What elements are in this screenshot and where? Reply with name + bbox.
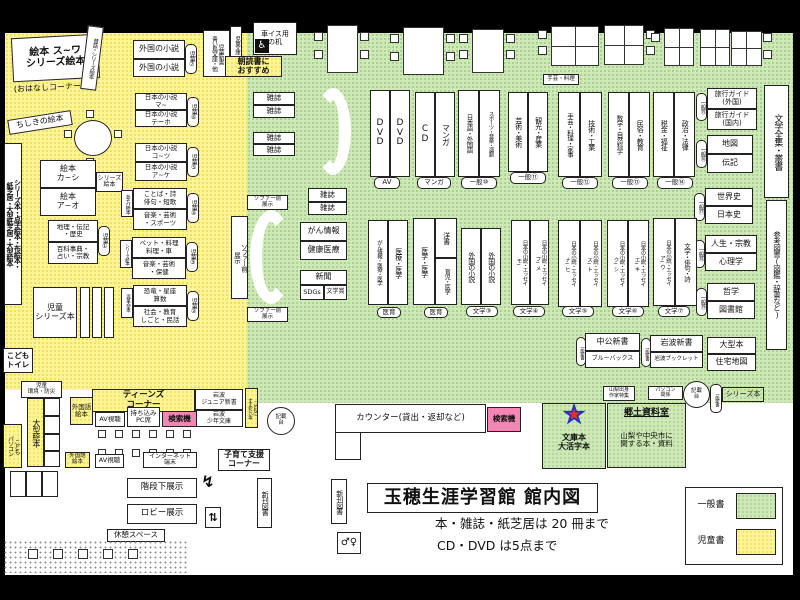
legend-general-label: 一般書 bbox=[688, 499, 734, 513]
tag-manga: マンガ bbox=[417, 177, 451, 189]
tag-ippan-10: 一般⑩ bbox=[461, 177, 497, 189]
jidou-series-shelf: 児童 シリーズ本 bbox=[33, 287, 77, 338]
shelf-cell bbox=[44, 416, 60, 434]
japanese-novels-kotsu-shelf: 日本の小説 コ~ツ bbox=[135, 143, 187, 162]
gaikoku-shosetsu-shelf: 外国の小説 bbox=[461, 228, 481, 305]
tag-bungaku-7: 文学⑦ bbox=[658, 306, 690, 317]
kanko-sangyo-shelf: 観光・産業 bbox=[528, 92, 548, 172]
tag-ippan-13: 一般⑬ bbox=[612, 177, 648, 189]
kyoryu-shelf: 恐竜・星座 算数 bbox=[133, 285, 187, 306]
chair bbox=[763, 50, 772, 59]
zasshi-shelf: 雑誌 bbox=[253, 105, 295, 118]
counter-leg bbox=[335, 432, 361, 460]
reading-table bbox=[604, 25, 644, 65]
bungaku-zenshu-strip: 文学全集・叢書 bbox=[764, 85, 789, 198]
chair bbox=[314, 50, 323, 59]
asadoku-recommend-box: 朝読書に おすすめ bbox=[225, 56, 282, 77]
bungakusho-shelf: 文学賞 bbox=[324, 285, 347, 300]
tag-av: AV bbox=[374, 177, 400, 189]
reading-table bbox=[700, 29, 730, 66]
sugaku-kagaku-shelf: 数学・自然科学 bbox=[608, 92, 629, 177]
lobby-tenji: ロビー展示 bbox=[127, 504, 197, 524]
sofa-mae-tag-bottom: ソファー前 展示 bbox=[247, 307, 288, 322]
kisaidai-circle: 記載 台 bbox=[683, 381, 710, 408]
jidou-kankyo-shelf: 児童 環境・防災 bbox=[21, 381, 62, 398]
shelf-pillar bbox=[104, 287, 114, 338]
chiri-denki-shelf: 地理・伝記 ・歴史 bbox=[48, 220, 98, 242]
bench-cell bbox=[42, 471, 58, 497]
stairs-icon: ↯ bbox=[197, 471, 219, 493]
legend-general-swatch bbox=[736, 493, 776, 519]
shakai-shelf: 社会・教育 しごと・民話 bbox=[133, 306, 187, 327]
nihon-essay-e-ki-shelf: 日本の小説・エッセイ エ~キ bbox=[628, 220, 649, 307]
chair bbox=[390, 52, 399, 61]
minzoku-kyoiku-shelf: 民俗・教育 bbox=[629, 92, 650, 177]
pet-ryori-shelf: ペット・料理 料理・車 bbox=[132, 237, 186, 258]
sanko-tosho-strip: 参考図書(図鑑・辞書など) bbox=[766, 200, 787, 350]
chair bbox=[360, 32, 369, 41]
chair bbox=[538, 30, 547, 39]
chair bbox=[446, 34, 455, 43]
av-limit-note: CD・DVD は5点まで bbox=[437, 537, 655, 555]
shelf-cell bbox=[44, 398, 60, 416]
jutaku-chizu-shelf: 住宅地図 bbox=[707, 354, 756, 371]
sports-ongaku-engeki-shelf: スポーツ・音楽・演劇 bbox=[479, 90, 500, 177]
chair bbox=[360, 50, 369, 59]
tetsugaku-shelf: 哲学 bbox=[707, 283, 755, 301]
kodomo-pasokon-strip: こども パソコン bbox=[3, 424, 22, 468]
tag-ippan-11: 一般⑪ bbox=[510, 172, 546, 184]
ogata-ehon-strip: 大型絵本 bbox=[27, 398, 44, 467]
wheelchair-icon: ♿ bbox=[255, 39, 269, 53]
rest-seat bbox=[78, 549, 88, 559]
ogata-bon-shelf: 大型本 bbox=[707, 337, 756, 354]
nihon-essay-mo-shelf: 日本の小説・エッセイ モ~ bbox=[511, 220, 530, 305]
kenko-iryo-shelf: 健康医療 bbox=[300, 241, 347, 260]
shelf-pillar bbox=[80, 287, 90, 338]
series-ehon-tag-1: シリーズ 絵本 bbox=[96, 172, 123, 192]
nihongo-gaikokugo-shelf: 日本語・外国語 bbox=[458, 90, 479, 177]
chizu-shelf: 地図 bbox=[707, 135, 753, 154]
teens-chair bbox=[132, 430, 140, 438]
ryoko-guide-kokunai-shelf: 旅行ガイド (国内) bbox=[707, 109, 757, 130]
japanese-novels-ake-shelf: 日本の小説 ア~ケ bbox=[135, 162, 187, 181]
gan-iryo-igaku-shelf: がん情報・医療・医学 bbox=[368, 220, 388, 305]
shelf-cell bbox=[44, 451, 60, 467]
restroom-icon: ♂♀ bbox=[337, 532, 361, 554]
series-ehon-tag-2: シリーズ絵本 bbox=[120, 240, 132, 268]
ehon-ka-shi-shelf: 絵本 カ~シ bbox=[40, 160, 96, 188]
tag-iiku-2: 医育 bbox=[424, 307, 448, 318]
tag-jidou-5: 児童⑤ bbox=[187, 147, 199, 177]
sekaishi-shelf: 世界史 bbox=[705, 188, 753, 206]
iwanami-shonen-shelf: 岩波 少年文庫 bbox=[195, 410, 243, 427]
chair bbox=[763, 33, 772, 42]
tag-ippan-19: 一般⑲ bbox=[696, 288, 707, 316]
chair bbox=[459, 50, 468, 59]
av-shicho-seat: AV視聴 bbox=[95, 412, 125, 427]
chair bbox=[506, 50, 515, 59]
tag-ippan-shinsho: 一般新書 bbox=[710, 384, 722, 413]
gaikokugo-ehon-shelf: 外国語 絵本 bbox=[70, 397, 93, 425]
rest-seat bbox=[53, 549, 63, 559]
jidou-ogata-tag: 児童大型本 bbox=[121, 288, 133, 318]
sofa-mae-tag-top: ソファー前 展示 bbox=[247, 195, 288, 210]
kisaidai-circle: 記載 台 bbox=[267, 407, 295, 435]
tag-ippan-14: 一般⑭ bbox=[657, 177, 693, 189]
reading-table bbox=[472, 29, 504, 73]
gijutsu-kogyo-shelf: 技術・工業 bbox=[580, 92, 602, 177]
nihon-essay-ku-shi-shelf: 日本の小説・エッセイ ク~シ bbox=[607, 220, 628, 307]
rest-seat bbox=[28, 549, 38, 559]
internet-tanmatsu: インターネット 端末 bbox=[143, 452, 197, 468]
seiji-horitsu-shelf: 政治・法律 bbox=[674, 92, 695, 177]
counter: カウンター(貸出・返却など) bbox=[335, 404, 486, 433]
shinrigaku-shelf: 心理学 bbox=[705, 253, 757, 271]
elevator-icon: ⇅ bbox=[205, 507, 221, 528]
av-shicho-seat: AV視聴 bbox=[95, 454, 124, 468]
yamanashi-sakka-tag: 山梨出身 作家特集 bbox=[603, 386, 635, 401]
kyodo-shiryo-desc: 山梨や中央市に 関する本・資料 bbox=[607, 426, 686, 454]
ehon-a-o-shelf: 絵本 ア~オ bbox=[40, 188, 96, 216]
zasshi-shelf: 雑誌 bbox=[308, 202, 347, 215]
legend-children-swatch bbox=[736, 529, 776, 555]
ryoko-guide-gaikoku-shelf: 旅行ガイド (外国) bbox=[707, 88, 757, 109]
tag-bungaku-4: 文学④ bbox=[513, 306, 545, 317]
nihonshi-shelf: 日本史 bbox=[705, 206, 753, 224]
shinkan-tosho-shelf: 新刊図書 bbox=[331, 479, 347, 524]
chair bbox=[506, 34, 515, 43]
tag-ippan-15: 一般⑮ bbox=[696, 93, 707, 121]
tag-jidou-2: 児童② bbox=[187, 291, 199, 321]
tag-ippan-shinsho: 一般新書 bbox=[576, 337, 586, 366]
iwanami-booklet-shelf: 岩波ブックレット bbox=[650, 352, 703, 368]
dvd-shelf: D V D bbox=[390, 90, 410, 177]
hyakka-shelf: 百科事典・ 占い・宗教 bbox=[48, 242, 98, 264]
yosho-shelf: 洋書 bbox=[435, 218, 457, 258]
japanese-novels-teho-shelf: 日本の小説 テーホ bbox=[135, 110, 187, 127]
chuko-shinsho-shelf: 中公新書 bbox=[585, 333, 640, 351]
reading-table bbox=[664, 28, 694, 66]
chair bbox=[446, 52, 455, 61]
teens-chair bbox=[115, 430, 123, 438]
shugei-ryori-kaji-shelf: 手芸・料理・家事 bbox=[558, 92, 580, 177]
reading-table bbox=[551, 26, 599, 66]
zasshi-shelf: 雑誌 bbox=[253, 92, 295, 105]
iwanami-junior-shelf: 岩波 ジュニア新書 bbox=[195, 389, 243, 410]
tag-ippan-17: 一般⑰ bbox=[694, 193, 705, 221]
tag-ippan-16: 一般⑯ bbox=[696, 140, 707, 168]
chair bbox=[646, 46, 655, 55]
rest-seat bbox=[103, 549, 113, 559]
jinsei-shukyo-shelf: 人生・宗教 bbox=[705, 235, 757, 253]
nihon-essay-su-to-shelf: 日本の小説・エッセイ ス~ト bbox=[580, 220, 602, 307]
iwanami-shinsho-shelf: 岩波新書 bbox=[650, 335, 703, 352]
shelf-pillar bbox=[92, 287, 102, 338]
search-machine: 検索機 bbox=[162, 411, 197, 427]
tag-jidou-1: 児童① bbox=[98, 226, 110, 256]
reading-table bbox=[403, 27, 444, 75]
kyodo-shiryo-title: 郷土資料室 bbox=[607, 407, 686, 421]
teens-chair bbox=[166, 430, 174, 438]
kamishibai-strip: シリーズ本・点字絵本・布絵本・ 紙芝居・大型紙芝居・大型絵本 bbox=[4, 143, 22, 305]
ikuji-igaku-shelf: 育児・医学 bbox=[435, 258, 457, 305]
foreign-novels-shelf-top: 外国の小説 bbox=[133, 40, 185, 59]
bungaku-haiku-shi-shelf: 文学・俳句・詩 bbox=[675, 218, 697, 306]
search-machine: 検索機 bbox=[487, 407, 521, 432]
sdgs-shelf: SDGs bbox=[300, 285, 324, 300]
asobi-ehon-tag: あそび絵本 bbox=[121, 190, 133, 217]
dvd-shelf: D V D bbox=[370, 90, 390, 177]
zasshi-shelf: 雑誌 bbox=[253, 144, 295, 156]
gaikoku-shosetsu-shelf: 外国の小説 bbox=[481, 228, 501, 305]
geijutsu-bijutsu-shelf: 芸術・美術 bbox=[508, 92, 528, 172]
series-bon-shelf: シリーズ本 bbox=[722, 387, 764, 402]
floor-map: 玉穂生涯学習館 館内図 本・雑誌・紙芝居は 20 冊まで CD・DVD は5点ま… bbox=[0, 0, 800, 600]
chair bbox=[651, 33, 660, 42]
tag-bungaku-5: 文学⑤ bbox=[562, 306, 594, 317]
rest-seat bbox=[128, 549, 138, 559]
bench-cell bbox=[26, 471, 42, 497]
shinkan-tosho-shelf: 新刊図書 bbox=[257, 478, 272, 528]
chair bbox=[538, 46, 547, 55]
kids-chair bbox=[114, 130, 122, 138]
chair bbox=[314, 32, 323, 41]
kosodate-shien-corner: 子育て支援 コーナー bbox=[218, 449, 270, 471]
location-star-icon: ★ bbox=[560, 401, 588, 429]
kids-chair bbox=[64, 130, 72, 138]
shinbun-shelf: 新聞 bbox=[300, 270, 347, 285]
kaidan-shita-tenji: 階段下展示 bbox=[127, 478, 197, 498]
foreign-novels-shelf-bottom: 外国の小説 bbox=[133, 59, 185, 77]
tag-jidou-6: 児童⑥ bbox=[187, 97, 199, 127]
nihon-essay-na-hi-shelf: 日本の小説・エッセイ ナ~ヒ bbox=[558, 220, 580, 307]
teens-chair bbox=[132, 449, 140, 457]
ongaku-hoken-shelf: 音楽・芸術 ・保健 bbox=[132, 258, 186, 279]
tag-jidou-7: 児童⑦ bbox=[185, 44, 197, 74]
nihon-essay-fu-me-shelf: 日本の小説・エッセイ フ~メ bbox=[530, 220, 549, 305]
gaikokugo-ehon-shelf: 外国語 絵本 bbox=[65, 452, 90, 468]
tag-ippan-shinsho: 一般新書 bbox=[641, 338, 651, 367]
shelf-cell bbox=[44, 434, 60, 451]
zasshi-shelf: 雑誌 bbox=[308, 188, 347, 202]
sofa-crescent bbox=[315, 88, 351, 175]
bunko-daikatsuji-label: 文庫本 大活字本 bbox=[542, 429, 606, 457]
reading-table bbox=[327, 25, 358, 73]
map-title: 玉穂生涯学習館 館内図 bbox=[367, 483, 598, 513]
tag-bungaku-6: 文学⑥ bbox=[612, 306, 644, 317]
tag-jidou-4: 児童④ bbox=[187, 193, 199, 223]
bench-cell bbox=[10, 471, 26, 497]
zasshi-shelf: 雑誌 bbox=[253, 132, 295, 144]
chair bbox=[459, 34, 468, 43]
sofa-crescent bbox=[250, 210, 292, 304]
igaku-shelf: 医学・医学 bbox=[413, 218, 435, 305]
gan-joho-shelf: がん情報 bbox=[300, 222, 347, 241]
chair bbox=[390, 34, 399, 43]
zeikin-fukushi-shelf: 税金・福祉 bbox=[653, 92, 674, 177]
japanese-novels-ma-shelf: 日本の小説 マ~ bbox=[135, 93, 187, 110]
toshokan-shelf: 図書館 bbox=[707, 301, 755, 319]
mochikomi-pc-seat: 持ち込み PC席 bbox=[127, 407, 160, 427]
borrow-limit-note: 本・雑誌・紙芝居は 20 冊まで bbox=[435, 515, 653, 533]
teens-chair bbox=[149, 430, 157, 438]
tag-jidou-3: 児童③ bbox=[186, 242, 198, 272]
iryo-igaku-shelf: 医療・医学 bbox=[388, 220, 408, 305]
manga-shelf: マンガ bbox=[435, 92, 455, 177]
teens-chair bbox=[183, 430, 191, 438]
tag-iiku-1: 医育 bbox=[377, 307, 401, 318]
kids-round-table bbox=[74, 120, 112, 156]
kodomo-toilet: こども トイレ bbox=[3, 348, 33, 373]
cd-shelf: C D bbox=[415, 92, 435, 177]
pasokon-kankei-tag: パソコン 関係 bbox=[648, 386, 683, 400]
nihon-essay-a-u-shelf: 日本の小説・エッセイ ア~ウ bbox=[653, 218, 675, 306]
tag-ippan-12: 一般⑫ bbox=[562, 177, 598, 189]
kids-chair bbox=[86, 110, 94, 118]
bluebacks-shelf: ブルーバックス bbox=[585, 351, 640, 368]
denki-shelf: 伝記 bbox=[707, 154, 753, 173]
kotoba-shi-shelf: ことば・詩 俳句・短歌 bbox=[133, 188, 187, 209]
teens-chair bbox=[98, 430, 106, 438]
kodomo-susume-strip: こどもに すすめたい本 bbox=[245, 388, 258, 428]
sofa-mae-strip: ソファー前 展示 bbox=[231, 216, 248, 299]
tag-bungaku-3: 文学③ bbox=[466, 306, 498, 317]
ongaku-sports-shelf: 音楽・芸術 ・スポーツ bbox=[133, 209, 187, 230]
legend-children-label: 児童書 bbox=[688, 535, 734, 549]
shugei-ryori-tag: 手芸・料理 bbox=[543, 74, 579, 85]
reading-table bbox=[731, 31, 762, 66]
